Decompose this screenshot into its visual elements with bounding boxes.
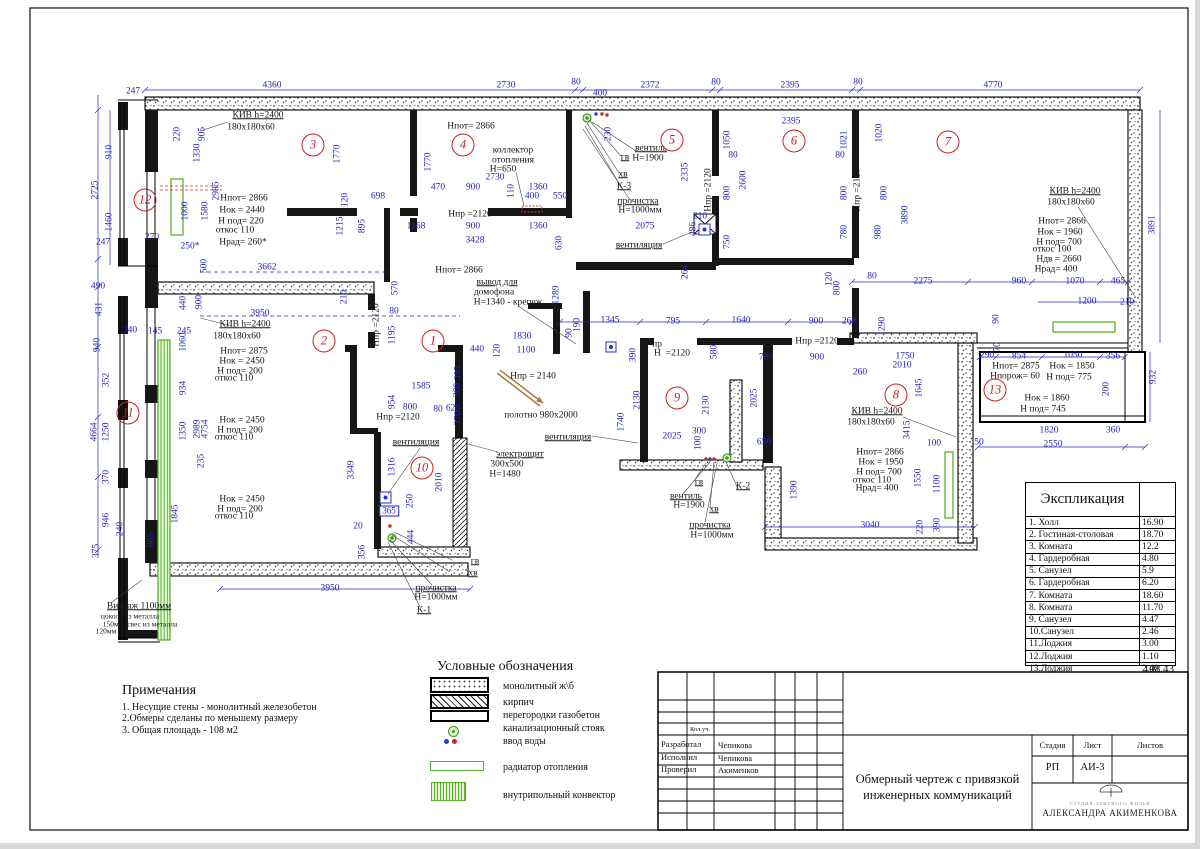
plan-label: 230	[604, 127, 614, 141]
plan-label: 50	[974, 438, 984, 448]
plan-label: 3040	[861, 521, 880, 531]
drawing-sheet: 4360273080237280239580477024740023959102…	[0, 0, 1200, 849]
plan-label: 900	[466, 222, 480, 232]
plan-label: К-1	[417, 606, 431, 616]
explication-title: Экспликация	[1026, 483, 1139, 516]
plan-label: 795	[666, 317, 680, 327]
plan-label: 630	[555, 236, 565, 250]
plan-label: 250*	[181, 242, 200, 252]
plan-label: 210	[693, 212, 707, 222]
plan-label: 20	[353, 522, 363, 532]
plan-label: 570	[391, 281, 401, 295]
plan-label: 1345	[601, 316, 620, 326]
plan-label: 780	[840, 225, 850, 239]
plan-label: 1100	[933, 475, 943, 494]
tb-kol-uch: Кол.уч.	[690, 726, 710, 733]
plan-label: 500	[200, 259, 210, 273]
tb-executed-label: Исполнил	[661, 752, 697, 762]
plan-label: 1020	[875, 124, 885, 143]
room-area: 6.20	[1142, 578, 1159, 588]
plan-label: 1250	[102, 423, 112, 442]
plan-label: Нпр =2120	[372, 303, 382, 346]
plan-label: 900	[466, 183, 480, 193]
page-edge-shadow	[0, 843, 1200, 849]
plan-label: 650	[757, 438, 771, 448]
explication-row: 11.Лоджия3.00	[1026, 638, 1175, 650]
plan-label: 290	[878, 317, 888, 331]
plan-label: 2010	[893, 361, 912, 371]
plan-label: 1770	[333, 145, 343, 164]
plan-label: 80	[867, 272, 877, 282]
room-area: 4.80	[1142, 554, 1159, 564]
plan-label: 940	[93, 338, 103, 352]
plan-label: 431	[95, 302, 105, 316]
room-name: 3. Комната	[1029, 542, 1072, 552]
room-number-12: 12	[134, 189, 157, 212]
room-area: 18.70	[1142, 530, 1163, 540]
room-number-5: 5	[661, 129, 684, 152]
explication-table: Экспликация 1. Холл16.902. Гостиная-стол…	[1025, 482, 1176, 666]
plan-label: 2395	[782, 117, 801, 127]
plan-label: КИВ h=2400	[1049, 187, 1100, 197]
legend-item-label: кирпич	[503, 697, 534, 708]
plan-label: Нпр =2120	[376, 413, 419, 423]
plan-label: 352	[102, 373, 112, 387]
plan-label: 375	[92, 544, 102, 558]
plan-label: 3950	[251, 309, 270, 319]
explication-row: 9. Санузел4.47	[1026, 614, 1175, 626]
plan-label: 240	[123, 326, 137, 336]
water-inlet-icon	[452, 739, 457, 744]
plan-label: Н=1000мм	[414, 593, 457, 603]
plan-label: 370	[454, 411, 464, 425]
plan-label: 1360	[529, 222, 548, 232]
room-area: 18.60	[1142, 591, 1163, 601]
convector-swatch	[431, 782, 466, 801]
plan-label: 2725	[91, 181, 101, 200]
plan-label: вентиляция	[616, 241, 663, 251]
plan-label: 1645	[915, 379, 925, 398]
plan-label: Н=1900	[673, 501, 704, 511]
explication-row: 12.Лоджия1.10	[1026, 650, 1175, 662]
plan-label: 470	[431, 183, 445, 193]
room-number-6: 6	[783, 130, 806, 153]
plan-label: 360	[1106, 426, 1120, 436]
plan-label: 370	[102, 470, 112, 484]
plan-label: 270	[145, 233, 159, 243]
note-line: 1. Несущие стены - монолитный железобето…	[122, 702, 317, 713]
plan-label: 80	[711, 78, 721, 88]
sewer-stack-icon	[448, 726, 459, 737]
explication-row: 5. Санузел5.9	[1026, 565, 1175, 577]
plan-label: 180x180x60	[847, 418, 895, 428]
room-number-7: 7	[937, 131, 960, 154]
concrete-swatch	[430, 677, 489, 693]
explication-row: 8. Комната11.70	[1026, 601, 1175, 613]
plan-label: 264	[681, 265, 691, 279]
explication-row: 4. Гардеробная4.80	[1026, 553, 1175, 565]
plan-label: 220	[916, 520, 926, 534]
room-number-4: 4	[452, 134, 475, 157]
room-area: 3.00	[1142, 639, 1159, 649]
plan-label: гв	[621, 153, 629, 163]
plan-label: 440	[470, 345, 484, 355]
explication-rows: 1. Холл16.902. Гостиная-столовая18.703. …	[1026, 516, 1175, 674]
plan-label: 180x180x60	[227, 123, 275, 133]
plan-label: 4754	[201, 420, 211, 439]
plan-label: 80	[571, 78, 581, 88]
tb-executed: Чепикова	[718, 753, 752, 763]
tb-developed: Чепикова	[718, 740, 752, 750]
plan-label: 120мм	[96, 627, 117, 635]
plan-label: откос 110	[215, 374, 253, 384]
plan-label: 300	[453, 383, 463, 397]
plan-label: 1100	[517, 346, 536, 356]
plan-label: 1215	[336, 217, 346, 236]
plan-label: 1200	[1078, 297, 1097, 307]
plan-label: 3349	[347, 461, 357, 480]
plan-label: 3662	[258, 263, 277, 273]
plan-label: Нок = 2440	[219, 206, 264, 216]
legend-title: Условные обозначения	[437, 659, 573, 675]
plan-label: 954	[388, 395, 398, 409]
plan-label: КИВ h=2400	[851, 407, 902, 417]
tb-sheets-label: Листов	[1112, 740, 1188, 750]
plan-label: 2600	[739, 171, 749, 190]
plan-label: Нпот= 2866	[447, 122, 494, 132]
plan-label: 120	[341, 193, 351, 207]
plan-label: гв	[695, 478, 703, 488]
plan-label: вентиляция	[545, 433, 592, 443]
plan-label: 1195	[388, 326, 398, 345]
plan-label: Н под= 745	[1020, 405, 1066, 415]
room-number-11: 11	[117, 402, 140, 425]
room-name: 10.Санузел	[1029, 627, 1074, 637]
plan-label: 486	[689, 222, 699, 236]
plan-label: 247	[126, 87, 140, 97]
plan-label: хв	[709, 505, 718, 515]
plan-label: 2025	[750, 389, 760, 408]
plan-label: Н=1000мм	[618, 206, 661, 216]
room-name: 8. Комната	[1029, 603, 1072, 613]
plan-label: Нпр =2120	[704, 168, 714, 211]
room-number-9: 9	[666, 387, 689, 410]
notes-title: Примечания	[122, 683, 196, 699]
plan-label: Нпот= 2866	[1038, 217, 1085, 227]
plan-label: 365	[379, 506, 399, 517]
plan-label: 180x180x60	[213, 332, 261, 342]
explication-row: 2. Гостиная-столовая18.70	[1026, 528, 1175, 540]
plan-label: 4360	[263, 81, 282, 91]
plan-label: 490	[91, 282, 105, 292]
plan-label: 90	[565, 328, 575, 338]
tb-checked-label: Проверил	[661, 764, 696, 774]
plan-label: 110	[507, 184, 517, 198]
plan-label: 1021	[840, 131, 850, 150]
plan-label: 1640	[732, 316, 751, 326]
room-number-10: 10	[411, 457, 434, 480]
explication-row: 6. Гардеробная6.20	[1026, 577, 1175, 589]
plan-label: К-3	[617, 182, 631, 192]
plan-label: 800	[833, 281, 843, 295]
plan-label: 465	[1111, 277, 1125, 287]
plan-label: 900	[809, 317, 823, 327]
plan-label: 550	[553, 192, 567, 202]
plan-label: 2335	[681, 163, 691, 182]
plan-label: 247	[96, 238, 110, 248]
plan-label: 210	[1120, 298, 1134, 308]
explication-row: 3. Комната12.2	[1026, 540, 1175, 552]
plan-label: 1460	[105, 213, 115, 232]
plan-label: 1845	[171, 505, 181, 524]
room-name: 13.Лоджия	[1029, 664, 1072, 674]
plan-label: 1060	[179, 333, 189, 352]
plan-label: 240	[116, 522, 126, 536]
room-name: 1. Холл	[1029, 518, 1059, 528]
tb-sheet: АИ-3	[1073, 762, 1112, 773]
plan-label: 1289	[552, 286, 562, 305]
plan-label: Нпр =2120	[795, 337, 838, 347]
room-area: 12.2	[1142, 542, 1159, 552]
plan-label: 80	[389, 307, 399, 317]
water-inlet-icon	[444, 739, 449, 744]
plan-label: 1550	[914, 469, 924, 488]
plan-label: 80	[433, 405, 443, 415]
plan-label: Н=1340 - крепеж	[474, 298, 543, 308]
plan-label: 800	[880, 186, 890, 200]
room-number-8: 8	[885, 384, 908, 407]
plan-label: 390	[629, 348, 639, 362]
plan-label: откос 110	[215, 512, 253, 522]
plan-label: 2550	[1044, 440, 1063, 450]
plan-label: 2075	[636, 222, 655, 232]
plan-label: 200	[1102, 382, 1112, 396]
plan-label: 1390	[790, 481, 800, 500]
plan-label: 3950	[321, 584, 340, 594]
plan-label: 1168	[407, 222, 426, 232]
room-number-13: 13	[984, 379, 1007, 402]
plan-label: 865	[147, 533, 157, 547]
plan-label: 780	[759, 353, 773, 363]
plan-label: 2010	[435, 473, 445, 492]
legend-item-label: перегородки газобетон	[503, 710, 600, 721]
room-number-2: 2	[313, 330, 336, 353]
plan-label: 3890	[901, 206, 911, 225]
explication-total: 108.43	[1100, 663, 1174, 675]
legend-item-label: радиатор отопления	[503, 762, 588, 773]
plan-label: 895	[358, 219, 368, 233]
plan-label: гв	[471, 557, 479, 567]
room-area: 16.90	[1142, 518, 1163, 528]
room-number-3: 3	[302, 134, 325, 157]
legend-item-label: канализационный стояк	[503, 723, 605, 734]
room-area: 11.70	[1142, 603, 1163, 613]
tb-checked: Акименков	[718, 765, 758, 775]
plan-label: откос 110	[215, 433, 253, 443]
plan-label: Нпр =2120	[853, 168, 863, 211]
plan-label: 750	[723, 235, 733, 249]
note-line: 3. Общая площадь - 108 м2	[122, 725, 238, 736]
plan-label: 400	[593, 89, 607, 99]
legend-item-label: внутрипольный конвектор	[503, 790, 615, 801]
room-area: 2.46	[1142, 627, 1159, 637]
plan-label: 1316	[388, 458, 398, 477]
plan-label: 1585	[412, 382, 431, 392]
plan-label: 290	[980, 351, 994, 361]
plan-label: 1330	[193, 144, 203, 163]
room-name: 12.Лоджия	[1029, 652, 1072, 662]
plan-label: 444	[407, 530, 417, 544]
tb-stage: РП	[1032, 762, 1073, 773]
plan-label: 395	[454, 366, 464, 380]
page-edge-shadow	[1195, 0, 1200, 849]
plan-label: 2395	[781, 81, 800, 91]
plan-label: 980	[874, 225, 884, 239]
plan-label: Нок = 1860	[1024, 394, 1069, 404]
plan-label: Нрад= 400	[1035, 265, 1078, 275]
plan-label: 80	[835, 151, 845, 161]
plan-label: 400	[525, 192, 539, 202]
plan-label: 90	[992, 314, 1002, 324]
plan-label: 1580	[201, 202, 211, 221]
doc-title-line2: инженерных коммуникаций	[843, 788, 1032, 803]
explication-row: 10.Санузел2.46	[1026, 626, 1175, 638]
plan-label: 390	[933, 518, 943, 532]
plan-label: 100	[927, 439, 941, 449]
plan-label: 900	[810, 353, 824, 363]
room-name: 11.Лоджия	[1029, 639, 1072, 649]
partition-swatch	[430, 710, 489, 722]
note-line: 2.Обмеры сделаны по меньшему размеру	[122, 713, 298, 724]
room-name: 5. Санузел	[1029, 566, 1072, 576]
plan-label: 180x180x60	[1047, 198, 1095, 208]
plan-label: Нрад= 400	[856, 484, 899, 494]
plan-label: 2372	[641, 81, 660, 91]
room-area: 5.9	[1142, 566, 1154, 576]
studio-name: АЛЕКСАНДРА АКИМЕНКОВА	[1032, 808, 1188, 818]
plan-label: 2275	[914, 277, 933, 287]
plan-label: 4664	[90, 423, 100, 442]
plan-label: КИВ h=2400	[232, 111, 283, 121]
plan-label: 698	[371, 192, 385, 202]
plan-label: Нрад= 260*	[219, 238, 266, 248]
plan-label: 1770	[424, 153, 434, 172]
plan-label: 2730	[497, 81, 516, 91]
radiator-swatch	[430, 761, 484, 771]
room-name: 6. Гардеробная	[1029, 578, 1090, 588]
plan-label: 2025	[663, 432, 682, 442]
plan-label: 235	[197, 454, 207, 468]
plan-label: 2130	[633, 391, 643, 410]
plan-label: 946	[102, 513, 112, 527]
plan-label: 3428	[466, 236, 485, 246]
room-area: 4.47	[1142, 615, 1159, 625]
plan-label: 800	[723, 186, 733, 200]
plan-label: 960	[1012, 277, 1026, 287]
plan-label: Н=1900	[632, 154, 663, 164]
room-name: 2. Гостиная-столовая	[1029, 530, 1114, 540]
plan-label: 4770	[984, 81, 1003, 91]
plan-label: 934	[179, 381, 189, 395]
plan-label: Н=1000мм	[690, 531, 733, 541]
plan-label: 220	[173, 127, 183, 141]
plan-label: Н под= 775	[1046, 373, 1092, 383]
plan-label: Нок = 1850	[1049, 362, 1094, 372]
plan-label: Нпр =2120	[448, 210, 491, 220]
plan-label: 100	[694, 436, 704, 450]
plan-label: Нпот= 2866	[435, 266, 482, 276]
doc-title-line1: Обмерный чертеж с привязкой	[843, 772, 1032, 787]
plan-label: 3891	[1148, 216, 1158, 235]
plan-label: хв	[468, 569, 477, 579]
plan-label: 1830	[513, 332, 532, 342]
plan-label: 120	[493, 344, 503, 358]
tb-sheet-label: Лист	[1073, 740, 1112, 750]
plan-label: Н =2120	[654, 349, 690, 359]
plan-label: 440	[179, 296, 189, 310]
plan-label: 3415	[903, 421, 913, 440]
plan-label: 260	[842, 317, 856, 327]
plan-label: 356	[358, 545, 368, 559]
plan-label: 932	[1149, 370, 1159, 384]
plan-label: 1000	[181, 202, 191, 221]
plan-label: 900	[195, 295, 205, 309]
brick-swatch	[430, 694, 489, 709]
plan-label: 70	[993, 342, 1003, 352]
plan-label: К-2	[736, 482, 750, 492]
plan-label: откос 110	[216, 226, 254, 236]
plan-label: 1050	[1064, 351, 1083, 361]
plan-label: вентиляция	[393, 438, 440, 448]
tb-stage-label: Стадия	[1032, 740, 1073, 750]
plan-label: 145	[148, 327, 162, 337]
room-name: 7. Комната	[1029, 591, 1072, 601]
plan-label: 356	[1106, 352, 1120, 362]
room-name: 9. Санузел	[1029, 615, 1072, 625]
plan-label: 580	[710, 345, 720, 359]
plan-label: 80	[853, 78, 863, 88]
room-name: 4. Гардеробная	[1029, 554, 1090, 564]
plan-label: 1820	[1040, 426, 1059, 436]
plan-label: 80	[728, 151, 738, 161]
plan-label: 250	[406, 494, 416, 508]
explication-row: 7. Комната18.60	[1026, 589, 1175, 601]
room-number-1: 1	[422, 330, 445, 353]
plan-label: 1350	[179, 422, 189, 441]
plan-label: 210	[340, 290, 350, 304]
plan-label: 2730	[486, 173, 505, 183]
plan-label: полотно 980x2000	[504, 411, 577, 421]
plan-label: 260	[853, 368, 867, 378]
legend-item-label: ввод воды	[503, 736, 546, 747]
explication-row: 1. Холл16.90	[1026, 516, 1175, 528]
plan-label: Нпот= 2866	[220, 194, 267, 204]
plan-label: 1070	[1066, 277, 1085, 287]
room-area: 1.10	[1142, 652, 1159, 662]
tb-developed-label: Разработал	[661, 739, 701, 749]
plan-label: 910	[105, 145, 115, 159]
studio-small-text: СТУДИЯ ЭЛИТНОГО ЖИЛЬЯ	[1040, 801, 1180, 806]
plan-label: 2130	[702, 396, 712, 415]
plan-label: 905	[198, 127, 208, 141]
plan-label: 1050	[723, 131, 733, 150]
plan-label: КИВ h=2400	[219, 320, 270, 330]
plan-label: Н=1480	[489, 470, 520, 480]
plan-label: 1740	[617, 413, 627, 432]
legend-item-label: монолитный ж\б	[503, 681, 574, 692]
plan-label: 800	[840, 186, 850, 200]
plan-label: хв	[618, 170, 627, 180]
